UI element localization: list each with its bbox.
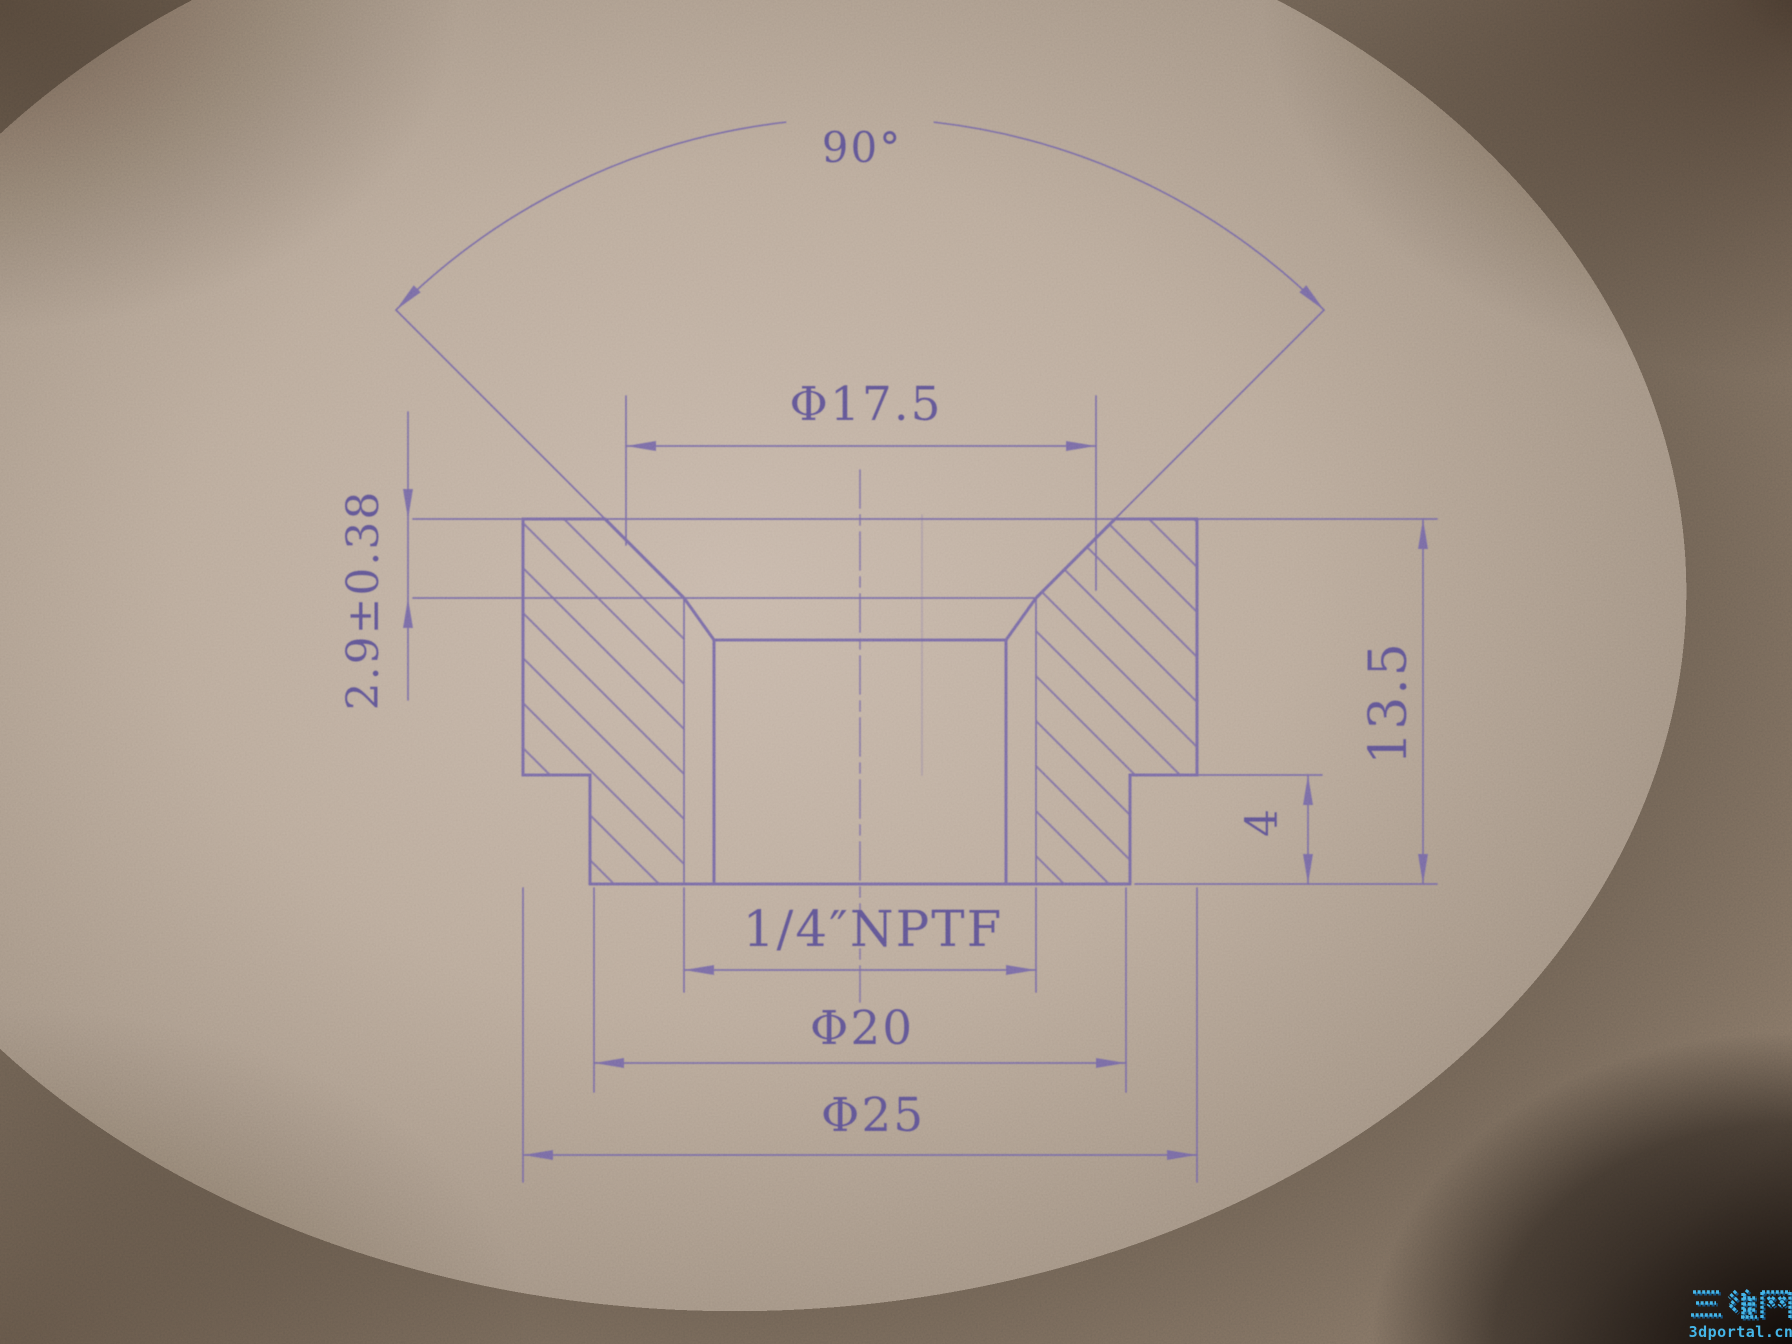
- photographed-engineering-drawing: 90° Φ17.5 2.9±0.38 13.5 4 1/4″NPTF Φ20 Φ…: [0, 0, 1792, 1344]
- watermark-domain-text: 3dportal.cn: [1689, 1323, 1792, 1341]
- drawing-svg: 90° Φ17.5 2.9±0.38 13.5 4 1/4″NPTF Φ20 Φ…: [0, 0, 1792, 1344]
- film-grain-overlay: [0, 0, 1792, 1344]
